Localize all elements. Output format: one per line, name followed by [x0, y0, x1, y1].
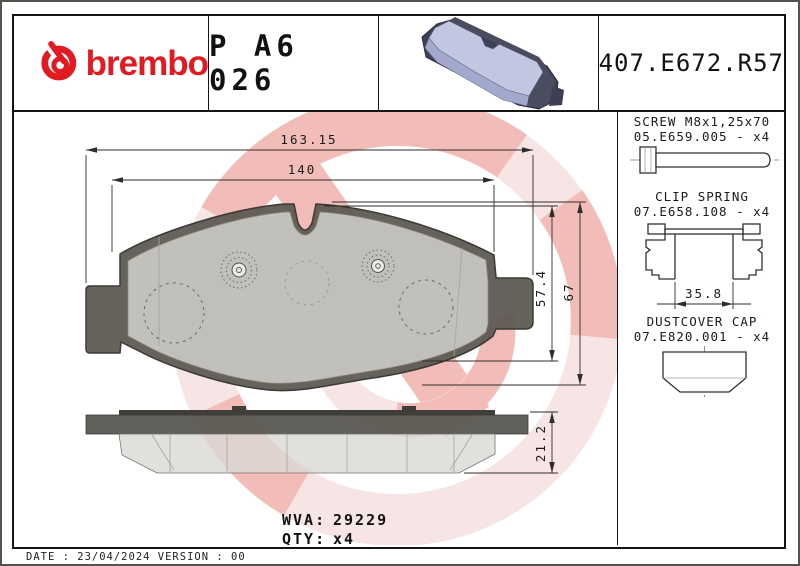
accessories-drawings: SCREW M8x1,25x70 05.E659.005 - x4 CLIP S… [618, 112, 785, 545]
dustcover-cap-icon [663, 346, 746, 399]
main-drawing-cell: 163.15 140 57.4 [14, 112, 617, 545]
clip-spring-icon [646, 224, 762, 279]
part-number: P A6 026 [209, 29, 378, 97]
clip-width-value: 35.8 [685, 286, 723, 301]
reference-cell: 407.E672.R57 [599, 16, 784, 110]
pad-3d-cell [379, 16, 599, 110]
date-version-line: DATE : 23/04/2024 VERSION : 00 [26, 551, 246, 563]
qty-value: x4 [333, 530, 355, 545]
brand-wordmark: brembo [86, 44, 208, 84]
pad-3d-image [379, 16, 599, 112]
qty-label: QTY: [282, 530, 326, 545]
screw-item: SCREW M8x1,25x70 05.E659.005 - x4 [630, 114, 779, 173]
dimension-overall-height: 67 [561, 282, 576, 301]
dimension-pad-width: 140 [288, 162, 317, 177]
dustcover-cap-item: DUSTCOVER CAP 07.E820.001 - x4 [634, 314, 770, 399]
brake-pad-drawing: 163.15 140 57.4 [14, 112, 617, 545]
clip-spring-title: CLIP SPRING [655, 189, 749, 204]
screw-title: SCREW M8x1,25x70 [634, 114, 770, 129]
clip-width-dimension: 35.8 [657, 282, 751, 309]
pad-bottom-view [86, 406, 528, 473]
clip-spring-code: 07.E658.108 - x4 [634, 204, 770, 219]
accessories-panel: SCREW M8x1,25x70 05.E659.005 - x4 CLIP S… [617, 112, 784, 545]
drawing-body: 163.15 140 57.4 [14, 112, 784, 545]
brand-cell: brembo [14, 16, 209, 110]
dustcover-cap-title: DUSTCOVER CAP [647, 314, 758, 329]
brembo-logo-icon [38, 40, 80, 86]
dimension-pad-height: 57.4 [533, 269, 548, 307]
reference-code: 407.E672.R57 [599, 49, 784, 77]
dustcover-cap-code: 07.E820.001 - x4 [634, 329, 770, 344]
screw-icon [630, 147, 779, 173]
wva-label: WVA: [282, 511, 326, 529]
title-block: brembo P A6 026 [14, 16, 784, 112]
datasheet-page: brembo P A6 026 [0, 0, 800, 566]
dimension-thickness: 21.2 [533, 424, 548, 462]
clip-spring-item: CLIP SPRING 07.E658.108 - x4 [634, 189, 770, 309]
pad-front-view [86, 204, 533, 391]
dimension-overall-width: 163.15 [280, 132, 337, 147]
wva-value: 29229 [333, 511, 388, 529]
screw-code: 05.E659.005 - x4 [634, 129, 770, 144]
part-number-cell: P A6 026 [209, 16, 379, 110]
drawing-frame: brembo P A6 026 [12, 14, 786, 549]
